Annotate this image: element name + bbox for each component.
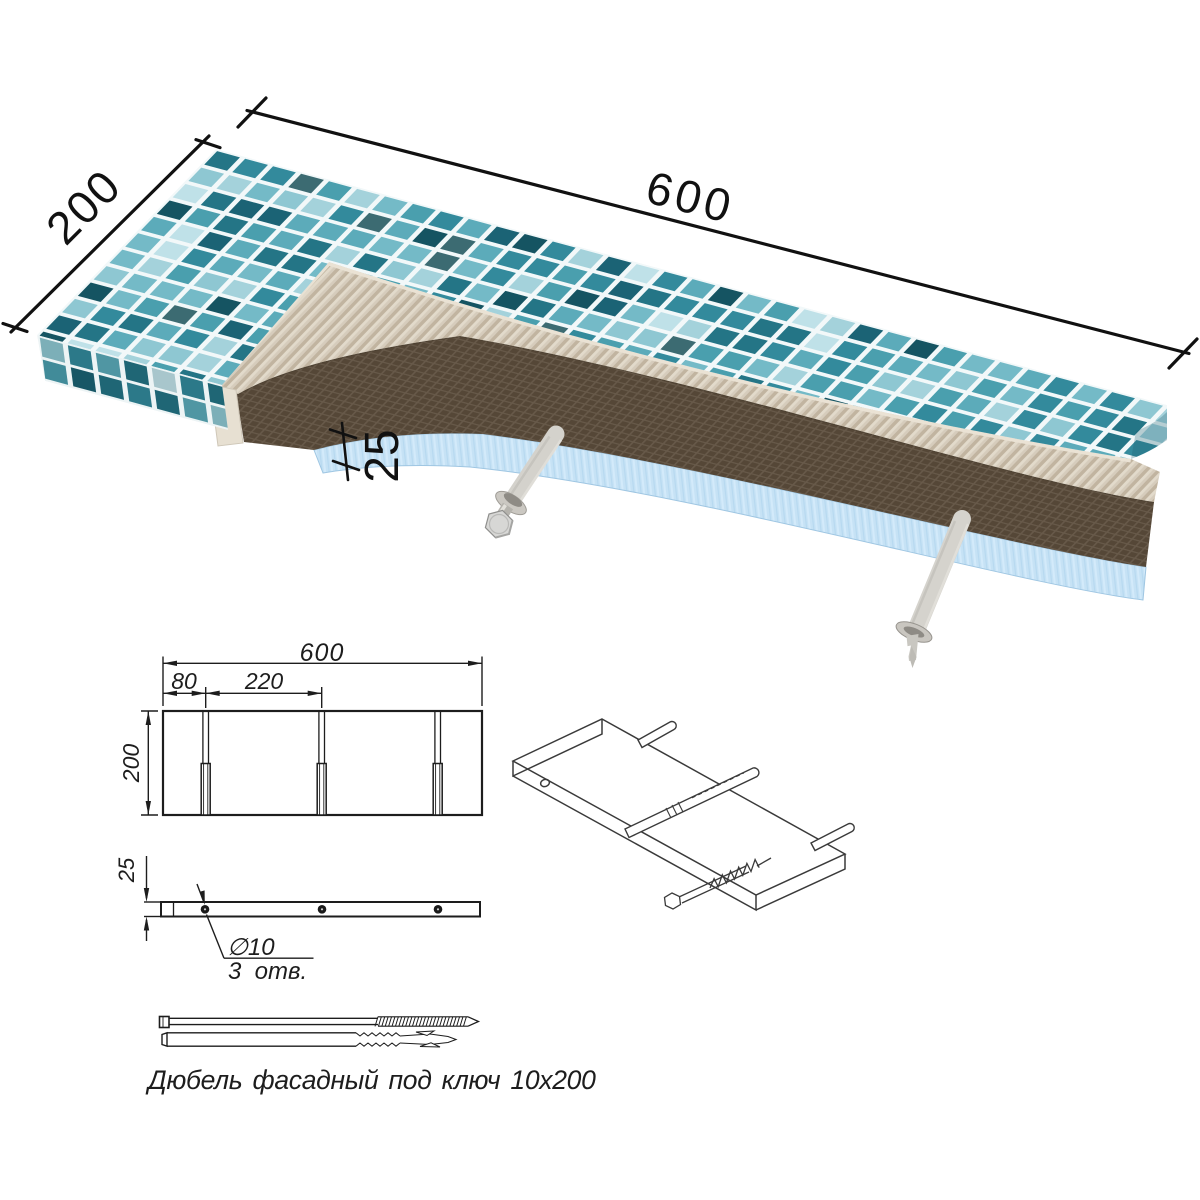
svg-text:200: 200 [118, 744, 144, 784]
svg-text:3 отв.: 3 отв. [228, 958, 307, 985]
svg-text:∅10: ∅10 [227, 934, 275, 961]
svg-text:25: 25 [114, 857, 139, 883]
svg-text:600: 600 [641, 161, 740, 234]
svg-text:200: 200 [36, 159, 131, 254]
svg-text:80: 80 [171, 668, 197, 694]
svg-text:25: 25 [356, 429, 409, 482]
svg-text:Дюбель фасадный под ключ 10х20: Дюбель фасадный под ключ 10х200 [145, 1065, 596, 1095]
svg-text:220: 220 [244, 668, 284, 694]
svg-text:600: 600 [300, 639, 345, 667]
